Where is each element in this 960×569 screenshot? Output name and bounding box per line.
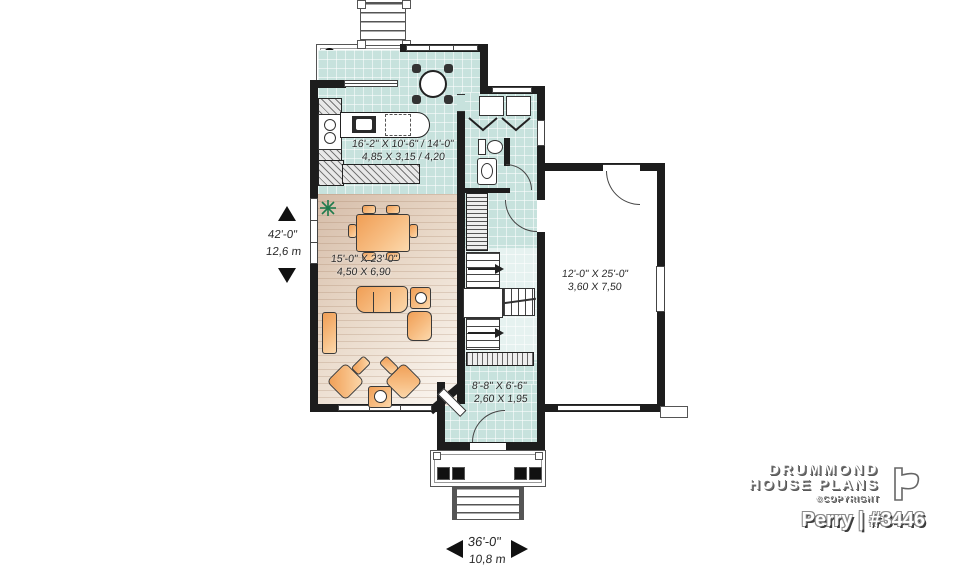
porch-post-base — [535, 452, 543, 460]
porch-post — [437, 467, 450, 480]
kitchen-dims-imperial: 16'-2" X 10'-6" / 14'-0" — [351, 138, 454, 150]
dining-chair — [348, 224, 357, 238]
window-mullion — [400, 405, 401, 411]
armchair — [407, 311, 432, 341]
garage-door — [558, 405, 640, 411]
sofa — [356, 286, 408, 313]
brand-line2: HOUSE PLANS — [740, 477, 879, 493]
porch-steps — [452, 487, 524, 520]
porch-post — [514, 467, 527, 480]
arrow-down-icon — [278, 268, 296, 283]
porch-post — [452, 467, 465, 480]
brand-copyright: ©COPYRIGHT — [740, 493, 879, 505]
lamp — [415, 292, 427, 304]
stair-arrow-head — [495, 264, 504, 274]
opening-kitchen-hall — [457, 94, 465, 112]
bifold-door-icon — [467, 117, 499, 132]
stair-post — [357, 0, 366, 9]
garage-dims-metric: 3,60 X 7,50 — [567, 281, 622, 293]
wall-deck-bottom — [310, 80, 346, 88]
porch-post — [529, 467, 542, 480]
stove-burner — [324, 119, 336, 131]
stair-shelf-hatch — [466, 193, 488, 251]
brand-block: DRUMMOND HOUSE PLANS ©COPYRIGHT Perry | … — [740, 462, 925, 532]
stair-arrow-head — [495, 328, 504, 338]
exterior-stairs — [360, 2, 406, 46]
stove-burner — [324, 132, 336, 144]
dining-chair — [386, 205, 400, 214]
hall-garage-door-gap — [537, 200, 545, 232]
drummond-logo-icon — [885, 462, 927, 504]
width-dim-metric: 10,8 m — [468, 552, 506, 566]
entry-dims-imperial: 8'-8" X 6'-6" — [471, 380, 527, 392]
window-mullion — [429, 45, 430, 51]
counter-bottom — [342, 164, 420, 184]
entry-dims-metric: 2,60 X 1,95 — [473, 393, 528, 405]
toilet-tank — [478, 139, 486, 155]
living-dims-imperial: 15'-0" X 23'-0" — [330, 253, 398, 265]
counter-corner — [318, 160, 344, 186]
window-left-living — [310, 198, 318, 264]
dining-chair — [409, 224, 418, 238]
window-laundry-top — [492, 87, 532, 93]
island-sink-basin — [356, 119, 372, 130]
kitchen-chair — [412, 64, 421, 73]
arrow-up-icon — [278, 206, 296, 221]
bifold-door-icon — [500, 117, 532, 132]
window-right-upper — [537, 120, 545, 146]
width-dim-imperial: 36'-0" — [467, 534, 502, 549]
kitchen-chair — [444, 95, 453, 104]
dishwasher — [385, 114, 411, 136]
window-mullion — [310, 242, 318, 243]
stair-post — [357, 40, 366, 49]
lamp — [374, 390, 387, 403]
kitchen-table — [419, 70, 447, 98]
plant-icon — [319, 199, 337, 217]
kitchen-chair — [412, 95, 421, 104]
dryer — [506, 96, 531, 116]
window-garage-right — [656, 266, 665, 312]
window-mullion — [310, 220, 318, 221]
patio-door-line — [344, 83, 398, 84]
window-mullion — [453, 45, 454, 51]
plan-name: Perry | #3446 — [740, 509, 925, 532]
living-dims-metric: 4,50 X 6,90 — [336, 266, 391, 278]
garage-step — [660, 406, 688, 418]
arrow-left-icon — [446, 540, 463, 558]
arrow-right-icon — [511, 540, 528, 558]
wall-garage-top — [537, 163, 665, 171]
sofa-seam — [390, 292, 391, 312]
height-dim-imperial: 42'-0" — [267, 229, 298, 241]
dining-chair — [362, 205, 376, 214]
stair-arrow-line — [468, 268, 496, 270]
dining-table — [356, 214, 410, 252]
stair-arrow-line — [468, 332, 496, 334]
stair-closet-hatch — [466, 352, 534, 366]
kitchen-chair — [444, 64, 453, 73]
porch-post-base — [433, 452, 441, 460]
console-table — [322, 312, 337, 354]
height-dim-metric: 12,6 m — [265, 246, 301, 258]
stair-landing — [463, 288, 503, 318]
garage-dims-imperial: 12'-0" X 25'-0" — [561, 268, 629, 280]
floor-plan: 16'-2" X 10'-6" / 14'-0" 4,85 X 3,15 / 4… — [0, 0, 960, 569]
stair-post — [402, 0, 411, 9]
kitchen-dims-metric: 4,85 X 3,15 / 4,20 — [361, 151, 445, 163]
sofa-seam — [373, 292, 374, 312]
brand-line1: DRUMMOND — [740, 462, 879, 477]
wall-bath-right — [504, 138, 510, 166]
bath-sink-basin — [481, 163, 493, 179]
toilet-bowl — [487, 140, 503, 154]
washer — [479, 96, 504, 116]
window-kitchen-top — [406, 45, 478, 51]
wall-interior-stair — [457, 110, 465, 404]
